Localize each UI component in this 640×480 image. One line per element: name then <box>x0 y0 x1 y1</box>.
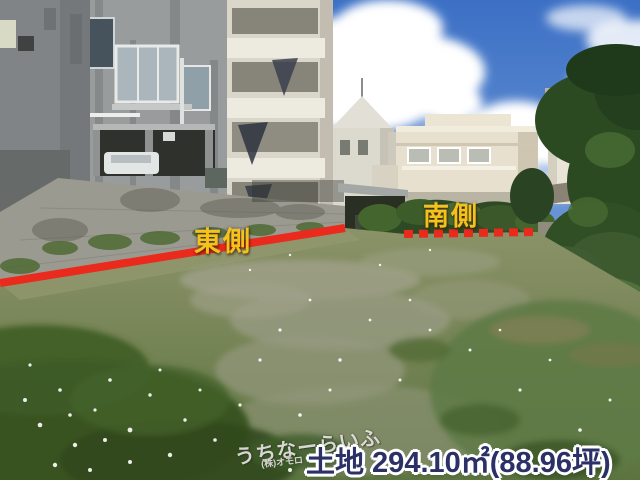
listing-photo: 東側 南側 うちなーらいふ (株)オモロ 土地 294.10㎡(88.96坪) <box>0 0 640 480</box>
south-boundary-line <box>404 232 537 234</box>
scene-photo <box>0 0 640 480</box>
